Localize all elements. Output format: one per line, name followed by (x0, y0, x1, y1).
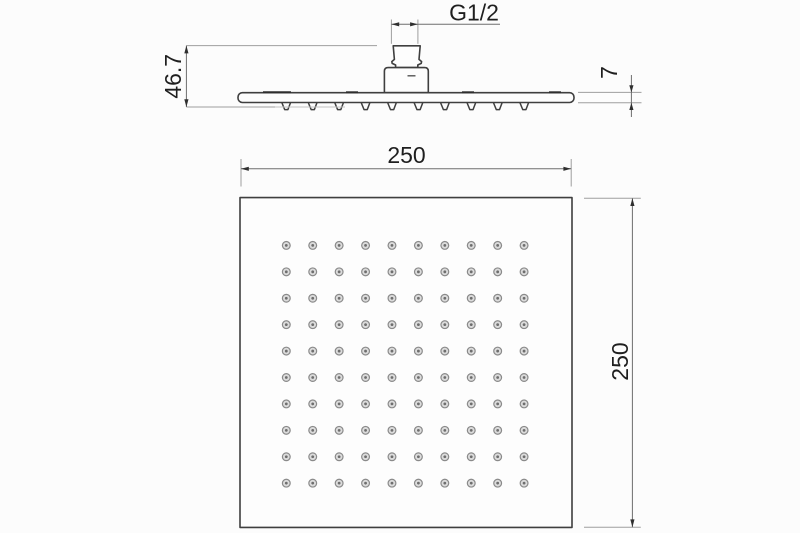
nozzle (388, 268, 396, 276)
nozzle (415, 294, 423, 302)
nozzle (441, 479, 449, 487)
nozzle (494, 242, 502, 250)
nozzle-hook (441, 103, 449, 110)
nozzle (520, 453, 528, 461)
nozzle (494, 347, 502, 355)
nozzle (520, 321, 528, 329)
nozzle (282, 426, 290, 434)
nozzle (520, 347, 528, 355)
thread-nut (392, 46, 422, 68)
nozzle (415, 400, 423, 408)
nozzle (335, 453, 343, 461)
nozzle-hook (520, 103, 528, 110)
nozzle (494, 321, 502, 329)
nozzle (335, 268, 343, 276)
nozzle-hook (335, 103, 343, 110)
nozzle (335, 321, 343, 329)
nozzle (388, 426, 396, 434)
nozzle (441, 268, 449, 276)
nozzle (362, 268, 370, 276)
nozzle (282, 374, 290, 382)
nozzle (494, 400, 502, 408)
plate-thickness-label: 7 (596, 66, 622, 79)
face-width-label: 250 (387, 142, 425, 168)
nozzle (415, 453, 423, 461)
nozzle (494, 268, 502, 276)
dimension-face-height: 250 (584, 198, 641, 527)
nozzle (441, 400, 449, 408)
head-height-label: 46.7 (160, 54, 186, 99)
drawing-canvas: G1/2 46.7 7 (0, 0, 800, 533)
nozzle (362, 242, 370, 250)
nozzle (388, 242, 396, 250)
nozzle-hook (414, 103, 422, 110)
nozzle (362, 321, 370, 329)
nozzle (494, 374, 502, 382)
nozzle (362, 479, 370, 487)
nozzle (467, 426, 475, 434)
side-view (238, 46, 574, 110)
nozzle (309, 453, 317, 461)
nozzle (520, 268, 528, 276)
nozzle (520, 479, 528, 487)
technical-drawing-svg: G1/2 46.7 7 (0, 0, 800, 533)
nozzle (309, 374, 317, 382)
nozzle (362, 374, 370, 382)
nozzle (282, 294, 290, 302)
nozzle (415, 479, 423, 487)
nozzle (309, 321, 317, 329)
nozzle (494, 426, 502, 434)
nozzle (520, 374, 528, 382)
nozzle (388, 374, 396, 382)
nozzle (362, 453, 370, 461)
nozzle (309, 400, 317, 408)
nozzle (388, 400, 396, 408)
nozzle (467, 374, 475, 382)
nozzle (467, 347, 475, 355)
nozzle (282, 400, 290, 408)
nozzle (388, 294, 396, 302)
nozzle (388, 453, 396, 461)
dimension-face-width: 250 (241, 142, 571, 187)
nozzle (362, 400, 370, 408)
nozzle (520, 426, 528, 434)
nozzle (335, 242, 343, 250)
thread-size-label: G1/2 (449, 0, 499, 26)
nozzle (415, 347, 423, 355)
nozzle (335, 374, 343, 382)
nozzle (282, 479, 290, 487)
nozzle (388, 347, 396, 355)
nozzle (441, 374, 449, 382)
nozzle-hook (467, 103, 475, 110)
nozzle (309, 294, 317, 302)
nozzle-hooks (282, 103, 528, 110)
front-view (240, 198, 572, 528)
nozzle (282, 453, 290, 461)
nozzle (494, 294, 502, 302)
nozzle (362, 347, 370, 355)
nozzle (441, 321, 449, 329)
nozzle (335, 426, 343, 434)
nozzle (388, 479, 396, 487)
nozzle (335, 479, 343, 487)
nozzle (467, 268, 475, 276)
nozzle (415, 426, 423, 434)
nozzle (441, 426, 449, 434)
nozzle (309, 242, 317, 250)
nozzle (520, 242, 528, 250)
nozzle (309, 479, 317, 487)
shower-plate-profile (238, 93, 574, 103)
nozzle-hook (388, 103, 396, 110)
nozzle (467, 294, 475, 302)
nozzle (335, 400, 343, 408)
nozzle (467, 479, 475, 487)
nozzle (441, 242, 449, 250)
nozzle (282, 347, 290, 355)
dimension-plate-thickness: 7 (578, 66, 642, 117)
nozzle (282, 268, 290, 276)
nozzle (415, 374, 423, 382)
nozzle (415, 321, 423, 329)
nozzle (309, 426, 317, 434)
nozzle (467, 453, 475, 461)
nozzle (282, 242, 290, 250)
nozzle (494, 453, 502, 461)
nozzle (309, 347, 317, 355)
nozzle-hook (282, 103, 290, 110)
nozzle (282, 321, 290, 329)
nozzle (415, 268, 423, 276)
nozzle (441, 453, 449, 461)
nozzle-hook (494, 103, 502, 110)
dimension-thread-size: G1/2 (391, 0, 500, 44)
nozzle (335, 347, 343, 355)
nozzle (467, 321, 475, 329)
nozzle-hook (308, 103, 316, 110)
nozzle (362, 294, 370, 302)
connector-body (384, 68, 428, 93)
nozzle (441, 347, 449, 355)
nozzle (467, 242, 475, 250)
nozzle (415, 242, 423, 250)
nozzle (309, 268, 317, 276)
nozzle (494, 479, 502, 487)
nozzle (467, 400, 475, 408)
nozzle (362, 426, 370, 434)
nozzle (520, 400, 528, 408)
face-height-label: 250 (607, 342, 633, 380)
nozzle-hook (361, 103, 369, 110)
nozzle (441, 294, 449, 302)
nozzle (335, 294, 343, 302)
nozzle (388, 321, 396, 329)
nozzle (520, 294, 528, 302)
